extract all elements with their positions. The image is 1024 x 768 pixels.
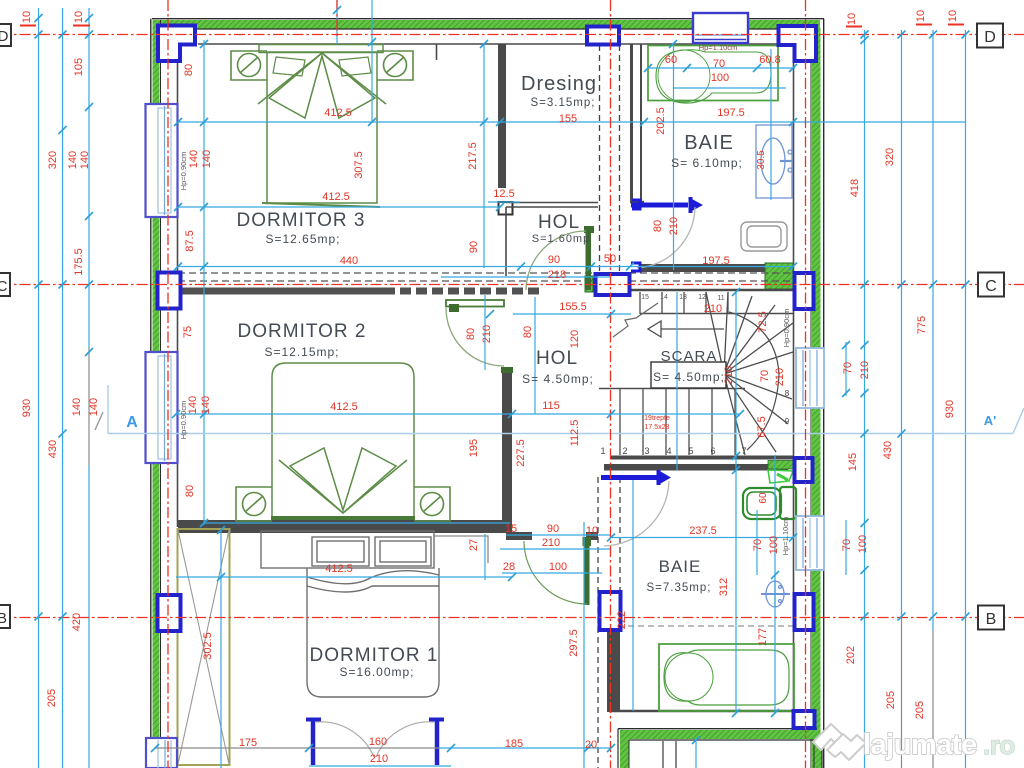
svg-text:320: 320	[884, 148, 896, 166]
svg-text:775: 775	[916, 316, 928, 334]
svg-text:17.5x28: 17.5x28	[645, 424, 670, 431]
svg-text:202.5: 202.5	[655, 107, 667, 135]
svg-text:120: 120	[569, 330, 581, 348]
svg-text:140: 140	[187, 396, 199, 414]
svg-text:14: 14	[660, 294, 668, 301]
svg-text:C: C	[0, 278, 8, 295]
svg-text:418: 418	[849, 179, 861, 197]
svg-text:S=12.15mp;: S=12.15mp;	[264, 345, 339, 359]
svg-text:145: 145	[847, 453, 859, 471]
svg-text:60.8: 60.8	[759, 54, 780, 66]
svg-text:80: 80	[652, 220, 664, 232]
svg-text:90: 90	[548, 254, 560, 266]
svg-text:80: 80	[184, 485, 196, 497]
svg-text:70: 70	[713, 58, 725, 70]
svg-text:160: 160	[369, 736, 387, 748]
svg-text:Hp=1.10cm: Hp=1.10cm	[781, 517, 790, 556]
svg-text:12: 12	[698, 294, 706, 301]
svg-text:S= 4.50mp;: S= 4.50mp;	[653, 370, 725, 384]
svg-text:205: 205	[46, 689, 58, 707]
svg-text:70: 70	[759, 370, 771, 382]
svg-text:140: 140	[67, 151, 79, 169]
svg-text:S=12.65mp;: S=12.65mp;	[265, 232, 340, 246]
svg-text:10: 10	[73, 11, 85, 23]
svg-text:10: 10	[586, 525, 598, 537]
svg-text:13: 13	[679, 294, 687, 301]
svg-text:lajumate: lajumate	[863, 729, 977, 761]
svg-text:Dresing: Dresing	[521, 73, 597, 95]
svg-text:237.5: 237.5	[689, 525, 717, 537]
svg-text:412.5: 412.5	[330, 401, 358, 413]
svg-text:6: 6	[710, 446, 715, 456]
svg-text:9: 9	[785, 417, 790, 426]
svg-text:412.5: 412.5	[322, 191, 350, 203]
svg-text:320: 320	[47, 151, 59, 169]
svg-text:202: 202	[845, 646, 857, 664]
svg-text:205: 205	[885, 691, 897, 709]
svg-text:307.5: 307.5	[353, 151, 365, 179]
svg-text:10: 10	[947, 10, 959, 22]
svg-text:10: 10	[915, 10, 927, 22]
svg-text:5: 5	[688, 446, 693, 456]
svg-text:S=1.60mp: S=1.60mp	[532, 233, 590, 245]
svg-text:C: C	[985, 278, 997, 295]
svg-text:217.5: 217.5	[467, 142, 479, 170]
svg-text:210: 210	[542, 537, 560, 549]
svg-text:312: 312	[718, 578, 730, 596]
svg-text:80: 80	[465, 328, 477, 340]
svg-text:4: 4	[666, 446, 671, 456]
svg-text:BAIE: BAIE	[684, 132, 734, 154]
svg-text:S= 4.50mp;: S= 4.50mp;	[522, 372, 594, 386]
svg-text:70: 70	[842, 362, 854, 374]
svg-text:1: 1	[600, 446, 605, 456]
svg-text:.ro: .ro	[983, 730, 1015, 760]
svg-text:210: 210	[370, 753, 388, 765]
svg-text:BAIE: BAIE	[659, 557, 702, 576]
svg-text:HOL: HOL	[536, 348, 578, 369]
svg-text:100: 100	[768, 536, 780, 554]
svg-text:90: 90	[468, 241, 480, 253]
svg-text:60: 60	[665, 54, 677, 66]
svg-text:115: 115	[542, 400, 560, 412]
svg-text:DORMITOR 1: DORMITOR 1	[310, 645, 439, 666]
svg-text:155: 155	[559, 113, 577, 125]
svg-text:B: B	[986, 611, 997, 628]
svg-text:930: 930	[21, 399, 33, 417]
svg-text:B: B	[0, 610, 7, 627]
svg-text:210: 210	[704, 303, 722, 315]
svg-text:DORMITOR 2: DORMITOR 2	[238, 321, 367, 342]
svg-text:A: A	[126, 414, 138, 431]
svg-text:70: 70	[841, 539, 853, 551]
svg-text:412.5: 412.5	[325, 563, 353, 575]
svg-text:Hp=0.90cm: Hp=0.90cm	[782, 309, 791, 348]
svg-text:140: 140	[71, 398, 83, 416]
svg-text:19trepte: 19trepte	[644, 415, 670, 422]
svg-text:140: 140	[79, 151, 91, 169]
svg-text:227.5: 227.5	[515, 439, 527, 467]
svg-text:D: D	[984, 29, 996, 46]
svg-text:105: 105	[73, 58, 85, 76]
svg-text:185: 185	[505, 738, 523, 750]
svg-text:210: 210	[859, 361, 871, 379]
svg-text:140: 140	[188, 150, 200, 168]
svg-text:S= 6.10mp;: S= 6.10mp;	[671, 156, 743, 170]
svg-text:210: 210	[481, 325, 493, 343]
svg-text:90: 90	[547, 523, 559, 535]
svg-text:8: 8	[785, 389, 790, 398]
svg-text:80: 80	[522, 326, 534, 338]
svg-text:Hp=0.90cm: Hp=0.90cm	[179, 152, 188, 191]
svg-text:177: 177	[757, 628, 769, 646]
svg-text:15: 15	[641, 294, 649, 301]
svg-text:100: 100	[711, 72, 729, 84]
svg-text:112.5: 112.5	[569, 420, 581, 447]
svg-text:Hp=1.10cm: Hp=1.10cm	[699, 43, 738, 52]
svg-text:15: 15	[505, 523, 517, 535]
svg-text:205: 205	[914, 701, 926, 719]
svg-text:175.5: 175.5	[73, 248, 85, 276]
svg-text:D: D	[0, 28, 9, 45]
svg-text:430: 430	[882, 441, 894, 459]
svg-text:80: 80	[183, 64, 195, 76]
svg-text:302.5: 302.5	[202, 632, 214, 660]
svg-text:S=7.35mp;: S=7.35mp;	[647, 582, 712, 594]
svg-text:140: 140	[201, 150, 213, 168]
svg-text:420: 420	[71, 613, 83, 631]
svg-text:197.5: 197.5	[717, 107, 745, 119]
svg-text:2: 2	[622, 446, 627, 456]
svg-text:412.5: 412.5	[324, 107, 352, 119]
svg-text:930: 930	[944, 400, 956, 418]
svg-text:210: 210	[774, 368, 786, 386]
svg-text:222: 222	[616, 611, 628, 629]
svg-text:DORMITOR 3: DORMITOR 3	[237, 210, 366, 231]
svg-text:440: 440	[340, 255, 358, 267]
svg-text:10: 10	[846, 13, 858, 25]
svg-text:20: 20	[585, 739, 597, 751]
svg-text:155.5: 155.5	[559, 301, 587, 313]
svg-text:70: 70	[752, 539, 764, 551]
svg-text:87.5: 87.5	[184, 230, 196, 251]
svg-text:297.5: 297.5	[568, 629, 580, 657]
svg-text:100: 100	[549, 561, 567, 573]
svg-text:100: 100	[857, 535, 869, 553]
svg-text:27: 27	[468, 539, 480, 551]
svg-text:12.5: 12.5	[493, 188, 514, 200]
svg-text:140: 140	[200, 396, 212, 414]
svg-text:75: 75	[182, 326, 194, 338]
svg-text:7: 7	[741, 446, 746, 456]
svg-text:72.5: 72.5	[757, 311, 769, 332]
svg-text:30.5: 30.5	[756, 150, 767, 170]
svg-text:67.5: 67.5	[756, 416, 768, 437]
svg-text:SCARA: SCARA	[661, 348, 718, 365]
svg-text:A': A'	[984, 413, 996, 428]
svg-text:50: 50	[604, 253, 616, 265]
svg-text:175: 175	[239, 737, 257, 749]
svg-text:218: 218	[548, 269, 566, 281]
svg-text:195: 195	[468, 439, 480, 457]
svg-text:HOL: HOL	[538, 212, 580, 233]
svg-text:S=16.00mp;: S=16.00mp;	[339, 665, 414, 679]
svg-text:210: 210	[668, 217, 680, 235]
svg-text:197.5: 197.5	[702, 255, 730, 267]
svg-text:140: 140	[88, 398, 100, 416]
svg-text:3: 3	[644, 446, 649, 456]
svg-text:430: 430	[47, 440, 59, 458]
svg-text:S=3.15mp;: S=3.15mp;	[531, 97, 596, 109]
svg-text:10: 10	[21, 11, 33, 23]
svg-text:60: 60	[758, 492, 769, 504]
svg-text:11: 11	[717, 295, 724, 302]
svg-text:28: 28	[503, 561, 515, 573]
svg-text:Hp=0.90cm: Hp=0.90cm	[179, 401, 188, 440]
